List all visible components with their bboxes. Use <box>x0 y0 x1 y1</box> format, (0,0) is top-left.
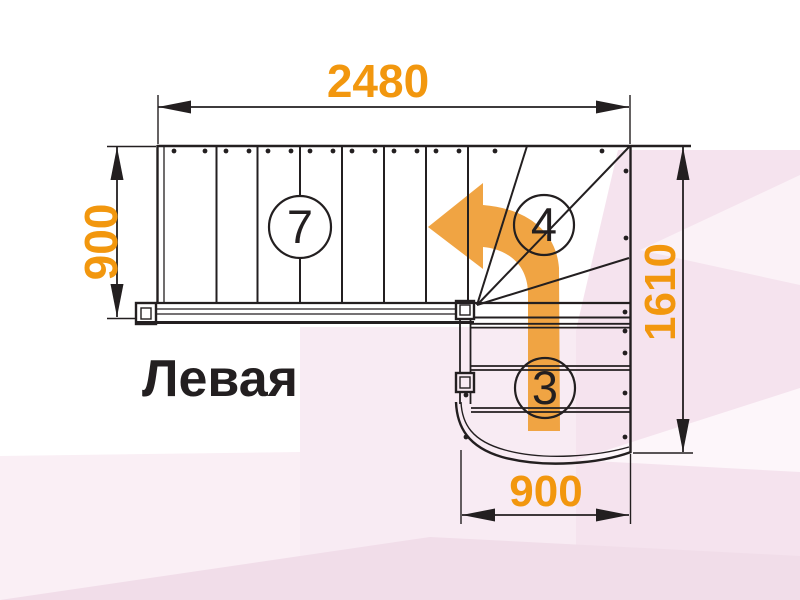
dimension-bottom-value: 900 <box>509 467 582 516</box>
staircase-plan-diagram: 2480 900 1610 900 7 4 3 Левая <box>0 0 800 600</box>
variant-label: Левая <box>142 350 298 408</box>
dimension-left-value: 900 <box>75 204 127 281</box>
plan-canvas: 2480 900 1610 900 7 4 3 Левая <box>0 0 800 600</box>
winder-count: 4 <box>531 198 557 251</box>
lower-flight-count: 3 <box>532 361 558 414</box>
dimension-top-value: 2480 <box>327 55 429 107</box>
upper-flight-count: 7 <box>287 200 313 253</box>
dimension-right-value: 1610 <box>636 243 685 341</box>
